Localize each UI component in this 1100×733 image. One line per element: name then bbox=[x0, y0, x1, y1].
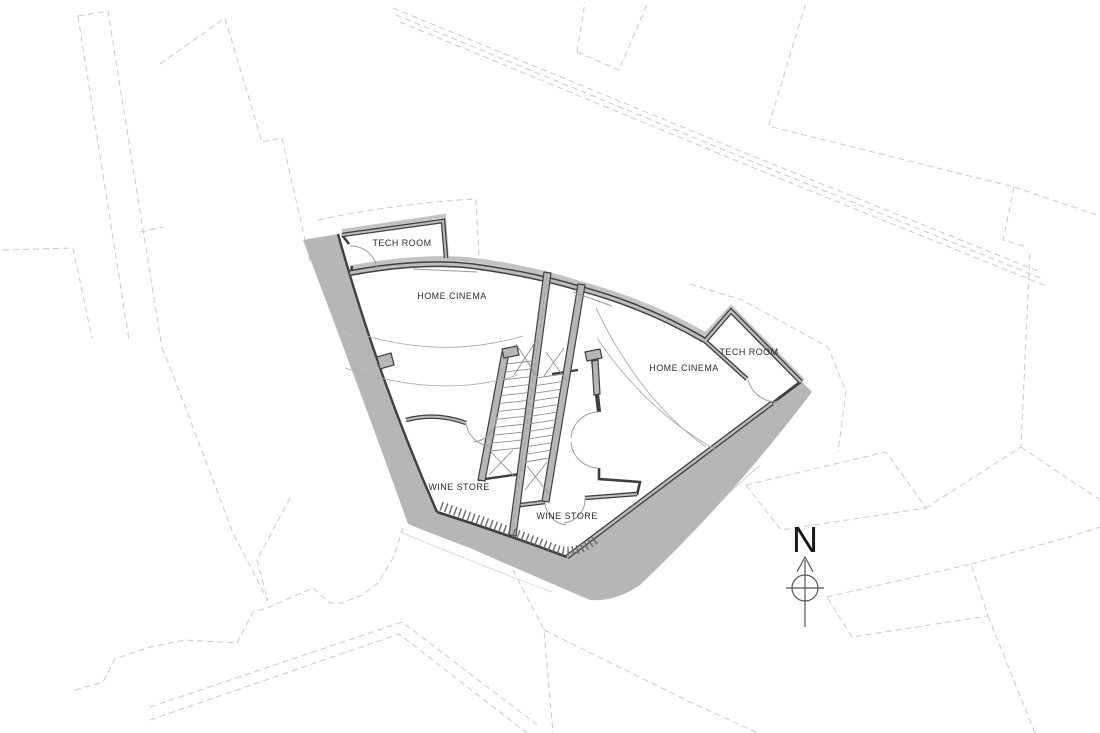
room-label-tech-room-right: TECH ROOM bbox=[719, 347, 778, 357]
room-label-home-cinema-left: HOME CINEMA bbox=[417, 291, 486, 301]
room-label-wine-store-left: WINE STORE bbox=[428, 482, 489, 492]
floor-plan-canvas: TECH ROOM HOME CINEMA WINE STORE HOME CI… bbox=[0, 0, 1100, 733]
room-label-tech-room-left: TECH ROOM bbox=[372, 238, 431, 248]
north-arrow-icon bbox=[786, 557, 824, 627]
site-boundary-lines bbox=[3, 2, 1100, 733]
north-label: N bbox=[792, 519, 818, 560]
room-label-wine-store-right: WINE STORE bbox=[536, 511, 597, 521]
room-label-home-cinema-right: HOME CINEMA bbox=[649, 363, 718, 373]
north-arrow: N bbox=[786, 519, 824, 627]
floor-plan-drawing: TECH ROOM HOME CINEMA WINE STORE HOME CI… bbox=[0, 0, 1100, 733]
